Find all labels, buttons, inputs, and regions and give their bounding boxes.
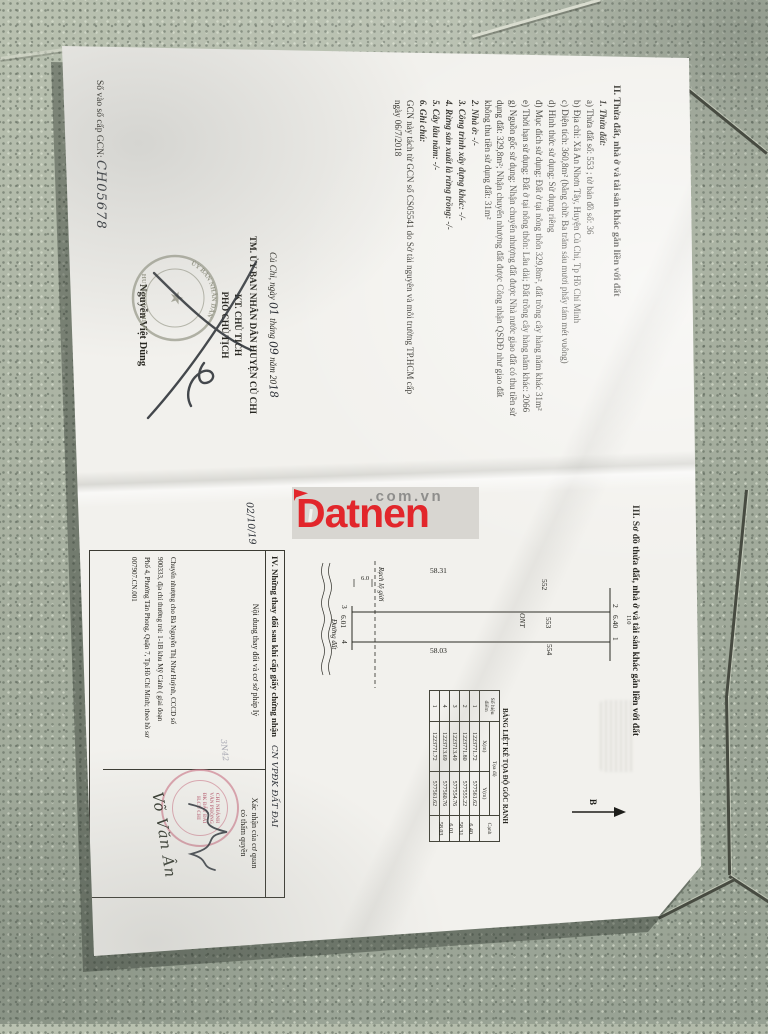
coordinate-row: 1 1223771.72 577561.62 (430, 691, 440, 842)
faint-handwriting: 3N42 (219, 739, 230, 762)
svg-text:Rạch lộ giới: Rạch lộ giới (377, 566, 385, 602)
section2-line: d) Hình thức sử dụng: Sử dụng riêng (545, 85, 558, 515)
svg-text:B: B (588, 799, 598, 805)
col-content-header: Nội dung thay đổi và cơ sở pháp lý (251, 551, 260, 769)
date-year-handwritten: 18 (266, 383, 280, 398)
svg-text:554: 554 (545, 644, 554, 656)
section2-line: 1. Thửa đất: (596, 85, 609, 515)
section2-line: g) Nguồn gốc sử dụng: Nhận chuyển nhượng… (506, 85, 519, 515)
section4-body: Nội dung thay đổi và cơ sở pháp lý Xác n… (103, 551, 265, 897)
grout-line (725, 696, 731, 875)
handwritten-date: 02/10/19 (244, 502, 258, 545)
coordinate-table: BẢNG LIỆT KÊ TỌA ĐỘ GÓC RANH Số hiệuđiểm… (429, 690, 508, 842)
change-content: Chuyển nhượng cho Bà Nguyễn Thị Như Huỳn… (127, 557, 179, 769)
date-month-handwritten: 09 (266, 340, 280, 355)
svg-text:Đường đất: Đường đất (330, 618, 338, 650)
svg-text:4: 4 (340, 640, 349, 644)
section2-line: 5. Cây lâu năm: -/- (429, 85, 442, 515)
photo-of-land-certificate: { "watermark": {"brand":"Datnen","suffix… (0, 0, 768, 1024)
section2-line: đ) Mục đích sử dụng: Đất ở tại nông thôn… (532, 85, 545, 515)
section2-line: 2. Nhà ở: -/- (468, 85, 481, 515)
handwritten-annotation: CN VPĐK ĐẤT ĐAI (269, 745, 279, 827)
section2-line: a) Thửa đất số: 553 ; tờ bản đồ số: 36 (583, 85, 596, 515)
svg-text:6.40: 6.40 (611, 615, 620, 628)
watermark-box: .com.vn Datnen (292, 487, 479, 539)
change-content-line: 007907.CN.001 (127, 557, 140, 769)
coordinate-row: 3 1223713.49 577554.76 6.01 (450, 691, 460, 842)
svg-text:553: 553 (544, 617, 553, 629)
svg-text:58.31: 58.31 (430, 566, 447, 575)
grout-line (685, 87, 768, 155)
col-coord: Tọa độ (490, 722, 500, 816)
col-y: Y(m) (480, 771, 490, 816)
grout-line (728, 875, 768, 903)
vice-chairman-signature (136, 255, 266, 430)
section2-line: b) Địa chỉ: Xã An Nhơn Tây, Huyện Củ Chi… (571, 85, 584, 515)
svg-text:58.03: 58.03 (430, 646, 447, 655)
date-mid2: năm 20 (268, 357, 278, 384)
coordinate-row: 1 1223771.72 577561.62 6.40 (470, 691, 480, 842)
watermark-brand: Datnen (296, 490, 429, 536)
registrar-signature (173, 796, 251, 876)
parcel-diagram: 552 553 554 ONT 2 6.40 1 110 58.31 58.03… (310, 543, 670, 713)
section2-line: không thu tiền sử dụng đất: 31m² (481, 85, 494, 515)
section2-line: 4. Rừng sản xuất là rừng trồng: -/- (442, 85, 455, 515)
serial-line: Số vào sổ cấp GCN: CH05678 (93, 80, 108, 230)
coordinate-row: 4 1223713.69 577560.76 58.03 (440, 691, 450, 842)
grout-line (0, 48, 64, 60)
svg-text:2: 2 (611, 604, 620, 608)
north-arrow: B (566, 798, 628, 834)
col-edge: Cạnh (480, 816, 500, 842)
section2-line: ngày 06/7/2018 (391, 85, 404, 515)
section2-heading: II. Thửa đất, nhà ở và tài sản khác gắn … (609, 85, 622, 515)
change-content-line: Chuyển nhượng cho Bà Nguyễn Thị Như Huỳn… (166, 557, 179, 769)
section2-line: 6. Ghi chú: (417, 85, 430, 515)
svg-text:110: 110 (625, 615, 632, 625)
serial-label: Số vào sổ cấp GCN: (94, 80, 104, 158)
section2-line: dụng đất: 329,8m²; Nhận chuyển nhượng đấ… (494, 85, 507, 515)
section2-line: 3. Công trình xây dựng khác: -/- (455, 85, 468, 515)
section2-lines: 1. Thửa đất:a) Thửa đất số: 553 ; tờ bản… (391, 85, 609, 515)
section4-heading: IV. Những thay đổi sau khi cấp giấy chứn… (265, 551, 284, 897)
svg-text:6.01: 6.01 (339, 615, 348, 628)
col-point: Số hiệuđiểm (480, 691, 500, 722)
serial-value-handwritten: CH05678 (93, 160, 108, 230)
grout-line (472, 0, 601, 38)
date-mid: tháng (268, 318, 278, 339)
svg-text:ONT: ONT (518, 613, 527, 628)
date-day-handwritten: 01 (266, 301, 280, 316)
svg-text:6.0: 6.0 (361, 575, 369, 582)
svg-text:552: 552 (540, 579, 549, 591)
date-place: Củ Chi, ngày (268, 252, 278, 300)
date-line: Củ Chi, ngày 01 tháng 09 năm 2018 (267, 200, 280, 450)
change-content-line: Phố 4, Phường Tân Phong, Quận 7, Tp.Hồ C… (140, 557, 153, 769)
section2-line: c) Diện tích: 360,8m² (bằng chữ: Ba trăm… (558, 85, 571, 515)
section4-box: IV. Những thay đổi sau khi cấp giấy chứn… (89, 550, 285, 898)
svg-text:3: 3 (340, 605, 349, 609)
coordinate-table-title: BẢNG LIỆT KÊ TỌA ĐỘ GÓC RANH (501, 690, 508, 842)
coordinate-table-grid: Số hiệuđiểm Tọa độ Cạnh X(m) Y(m) 1 1223… (429, 690, 500, 842)
coordinate-row: 2 1223771.80 577555.22 58.31 (460, 691, 470, 842)
grout-line (725, 490, 748, 697)
section2-block: II. Thửa đất, nhà ở và tài sản khác gắn … (391, 85, 622, 515)
change-content-line: 900333, địa chỉ thường trú: 1-1B khu Mỹ … (153, 557, 166, 769)
section2-line: e) Thời hạn sử dụng: Đất ở tại nông thôn… (519, 85, 532, 515)
col-x: X(m) (480, 722, 490, 771)
svg-text:1: 1 (611, 637, 620, 641)
section2-line: GCN này tách từ GCN số CS05541 do Sở tài… (404, 85, 417, 515)
